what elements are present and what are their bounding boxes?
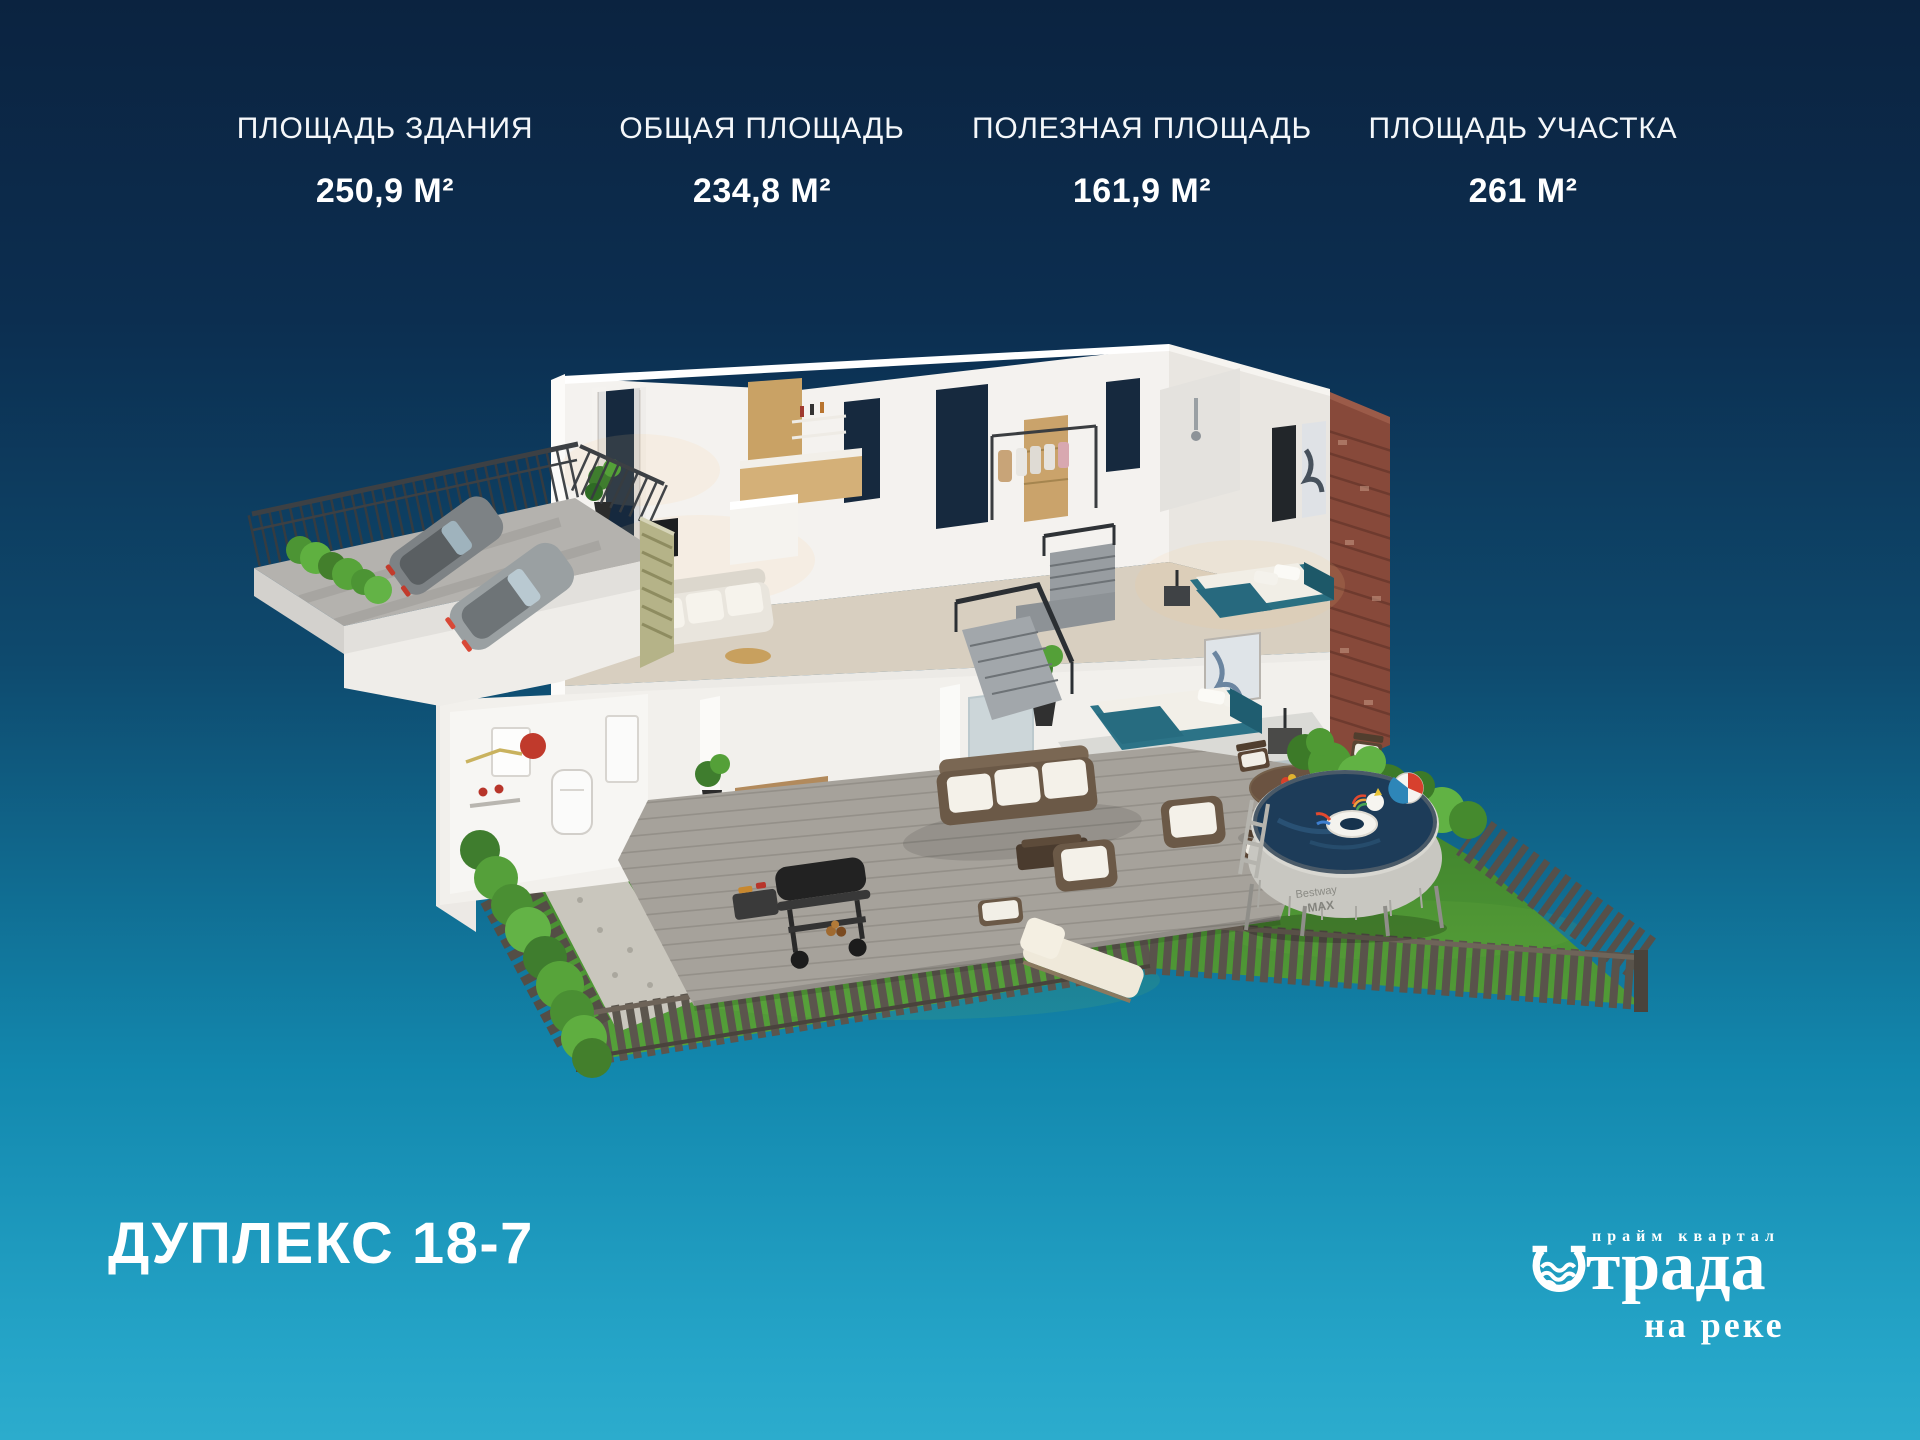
insulation-cut-wall xyxy=(640,518,674,668)
wall-art xyxy=(1302,421,1326,518)
wall-art xyxy=(1272,425,1296,522)
armchair xyxy=(1052,838,1119,892)
bathroom-tile-wall xyxy=(1160,368,1240,512)
dining-chair xyxy=(1236,740,1270,773)
brand-logo: прайм квартал трада на реке xyxy=(1528,1224,1828,1344)
logo-name: трада xyxy=(1586,1230,1766,1304)
stat-value: 234,8 М² xyxy=(619,172,904,211)
stat-building-area: ПЛОЩАДЬ ЗДАНИЯ 250,9 М² xyxy=(237,112,534,211)
stat-value: 250,9 М² xyxy=(237,172,534,211)
railing-top xyxy=(252,444,578,514)
stat-plot-area: ПЛОЩАДЬ УЧАСТКА 261 М² xyxy=(1369,112,1678,211)
presentation-slide: Bestway MAX xyxy=(0,0,1920,1440)
otrada-water-cup-icon xyxy=(1528,1238,1590,1300)
logo-subtitle: на реке xyxy=(1644,1304,1785,1346)
expansion-tank xyxy=(520,733,546,759)
nightstand xyxy=(1164,586,1190,606)
water-heater xyxy=(552,770,592,834)
stat-label: ПЛОЩАДЬ ЗДАНИЯ xyxy=(237,112,534,146)
shower-head xyxy=(1191,431,1201,441)
fence-corner-post xyxy=(1634,950,1648,1012)
stat-value: 261 М² xyxy=(1369,172,1678,211)
stat-total-area: ОБЩАЯ ПЛОЩАДЬ 234,8 М² xyxy=(619,112,904,211)
hanging-jacket xyxy=(998,450,1012,482)
plan-title: ДУПЛЕКС 18-7 xyxy=(108,1210,534,1277)
stat-value: 161,9 М² xyxy=(972,172,1312,211)
stat-label: ОБЩАЯ ПЛОЩАДЬ xyxy=(619,112,904,146)
stat-label: ПОЛЕЗНАЯ ПЛОЩАДЬ xyxy=(972,112,1312,146)
coffee-table xyxy=(725,648,771,664)
armchair xyxy=(1160,795,1227,849)
stat-label: ПЛОЩАДЬ УЧАСТКА xyxy=(1369,112,1678,146)
beach-ball xyxy=(1388,773,1423,804)
stat-usable-area: ПОЛЕЗНАЯ ПЛОЩАДЬ 161,9 М² xyxy=(972,112,1312,211)
